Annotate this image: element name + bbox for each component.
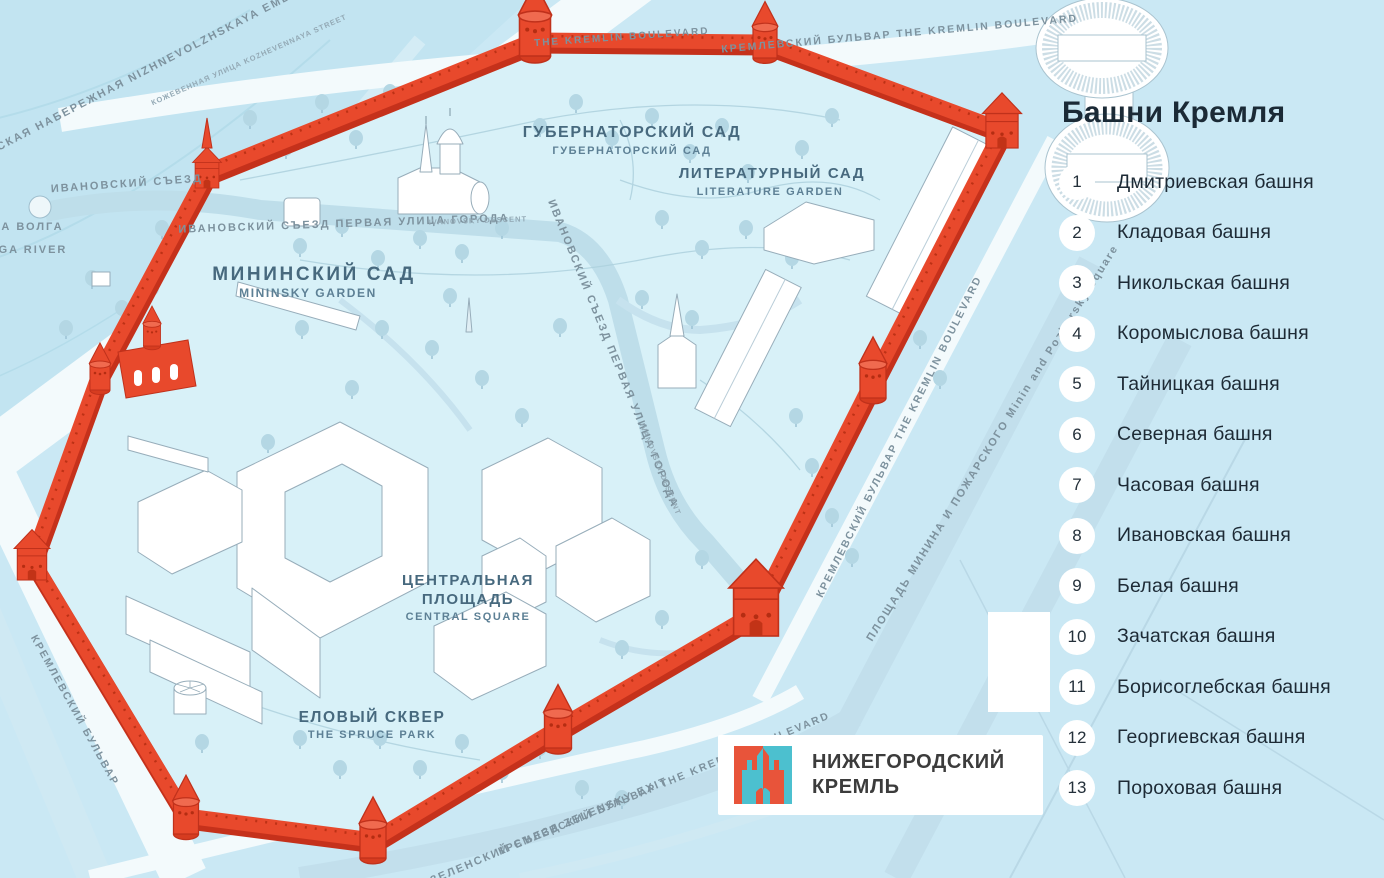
legend-item-11[interactable]: 11Борисоглебская башня	[1059, 669, 1331, 705]
legend-title: Башни Кремля	[1062, 96, 1285, 130]
legend-number: 6	[1059, 417, 1095, 453]
legend-label: Зачатская башня	[1117, 625, 1276, 648]
legend-number: 1	[1059, 164, 1095, 200]
kremlin-map-page: РЕКА ВОЛГА VOLGA RIVER НИЖНЕВОЛЖСКАЯ НАБ…	[0, 0, 1384, 878]
literature-garden-label: ЛИТЕРАТУРНЫЙ САД	[679, 164, 865, 182]
legend-label: Тайницкая башня	[1117, 373, 1280, 396]
kremlin-logo[interactable]: НИЖЕГОРОДСКИЙ КРЕМЛЬ	[718, 735, 1043, 815]
spruce-park-label: ЕЛОВЫЙ СКВЕР	[299, 708, 446, 726]
gubernatorsky-garden-sub: ГУБЕРНАТОРСКИЙ САД	[552, 144, 711, 157]
legend-label: Дмитриевская башня	[1117, 171, 1314, 194]
legend-number: 11	[1059, 669, 1095, 705]
legend-number: 8	[1059, 518, 1095, 554]
legend-item-2[interactable]: 2Кладовая башня	[1059, 215, 1331, 251]
small-hut	[92, 272, 110, 286]
blank-overlay	[988, 612, 1050, 712]
legend-item-7[interactable]: 7Часовая башня	[1059, 467, 1331, 503]
monument	[29, 196, 51, 218]
legend-label: Часовая башня	[1117, 474, 1260, 497]
kremlin-logo-text: НИЖЕГОРОДСКИЙ КРЕМЛЬ	[812, 750, 1005, 800]
legend-number: 9	[1059, 568, 1095, 604]
legend-label: Северная башня	[1117, 423, 1273, 446]
legend-label: Коромыслова башня	[1117, 322, 1309, 345]
legend-item-10[interactable]: 10Зачатская башня	[1059, 619, 1331, 655]
legend-number: 12	[1059, 720, 1095, 756]
spruce-park-sub: THE SPRUCE PARK	[308, 729, 436, 741]
mininsky-garden-label: МИНИНСКИЙ САД	[212, 263, 416, 285]
legend-number: 10	[1059, 619, 1095, 655]
legend-item-13[interactable]: 13Пороховая башня	[1059, 770, 1331, 806]
central-square-label-1: ЦЕНТРАЛЬНАЯ	[402, 572, 534, 589]
mininsky-garden-sub: MININSKY GARDEN	[239, 286, 377, 300]
legend-item-3[interactable]: 3Никольская башня	[1059, 265, 1331, 301]
gubernatorsky-garden-label: ГУБЕРНАТОРСКИЙ САД	[523, 122, 742, 141]
legend-number: 7	[1059, 467, 1095, 503]
rotunda-building	[174, 681, 206, 714]
legend-label: Георгиевская башня	[1117, 726, 1305, 749]
central-square-label-2: ПЛОЩАДЬ	[422, 591, 514, 608]
legend-label: Никольская башня	[1117, 272, 1290, 295]
central-square-sub: CENTRAL SQUARE	[406, 611, 531, 623]
legend-item-8[interactable]: 8Ивановская башня	[1059, 518, 1331, 554]
legend-label: Ивановская башня	[1117, 524, 1291, 547]
legend-label: Борисоглебская башня	[1117, 676, 1331, 699]
literature-garden-sub: LITERATURE GARDEN	[697, 186, 844, 198]
legend-label: Пороховая башня	[1117, 777, 1282, 800]
legend-number: 4	[1059, 316, 1095, 352]
legend-label: Белая башня	[1117, 575, 1239, 598]
legend-number: 3	[1059, 265, 1095, 301]
kremlin-tower[interactable]	[519, 0, 552, 63]
legend-label: Кладовая башня	[1117, 221, 1271, 244]
legend-item-4[interactable]: 4Коромыслова башня	[1059, 316, 1331, 352]
legend-number: 2	[1059, 215, 1095, 251]
legend-item-9[interactable]: 9Белая башня	[1059, 568, 1331, 604]
tower-legend: 1Дмитриевская башня 2Кладовая башня 3Ник…	[1059, 164, 1331, 806]
logo-line-2: КРЕМЛЬ	[812, 775, 1005, 800]
volga-label-ru: РЕКА ВОЛГА	[0, 221, 64, 233]
volga-label-en: VOLGA RIVER	[0, 244, 67, 256]
legend-item-6[interactable]: 6Северная башня	[1059, 417, 1331, 453]
legend-number: 5	[1059, 366, 1095, 402]
legend-item-1[interactable]: 1Дмитриевская башня	[1059, 164, 1331, 200]
legend-number: 13	[1059, 770, 1095, 806]
legend-item-5[interactable]: 5Тайницкая башня	[1059, 366, 1331, 402]
logo-line-1: НИЖЕГОРОДСКИЙ	[812, 750, 1005, 775]
legend-item-12[interactable]: 12Георгиевская башня	[1059, 720, 1331, 756]
kremlin-logo-icon	[734, 746, 792, 804]
